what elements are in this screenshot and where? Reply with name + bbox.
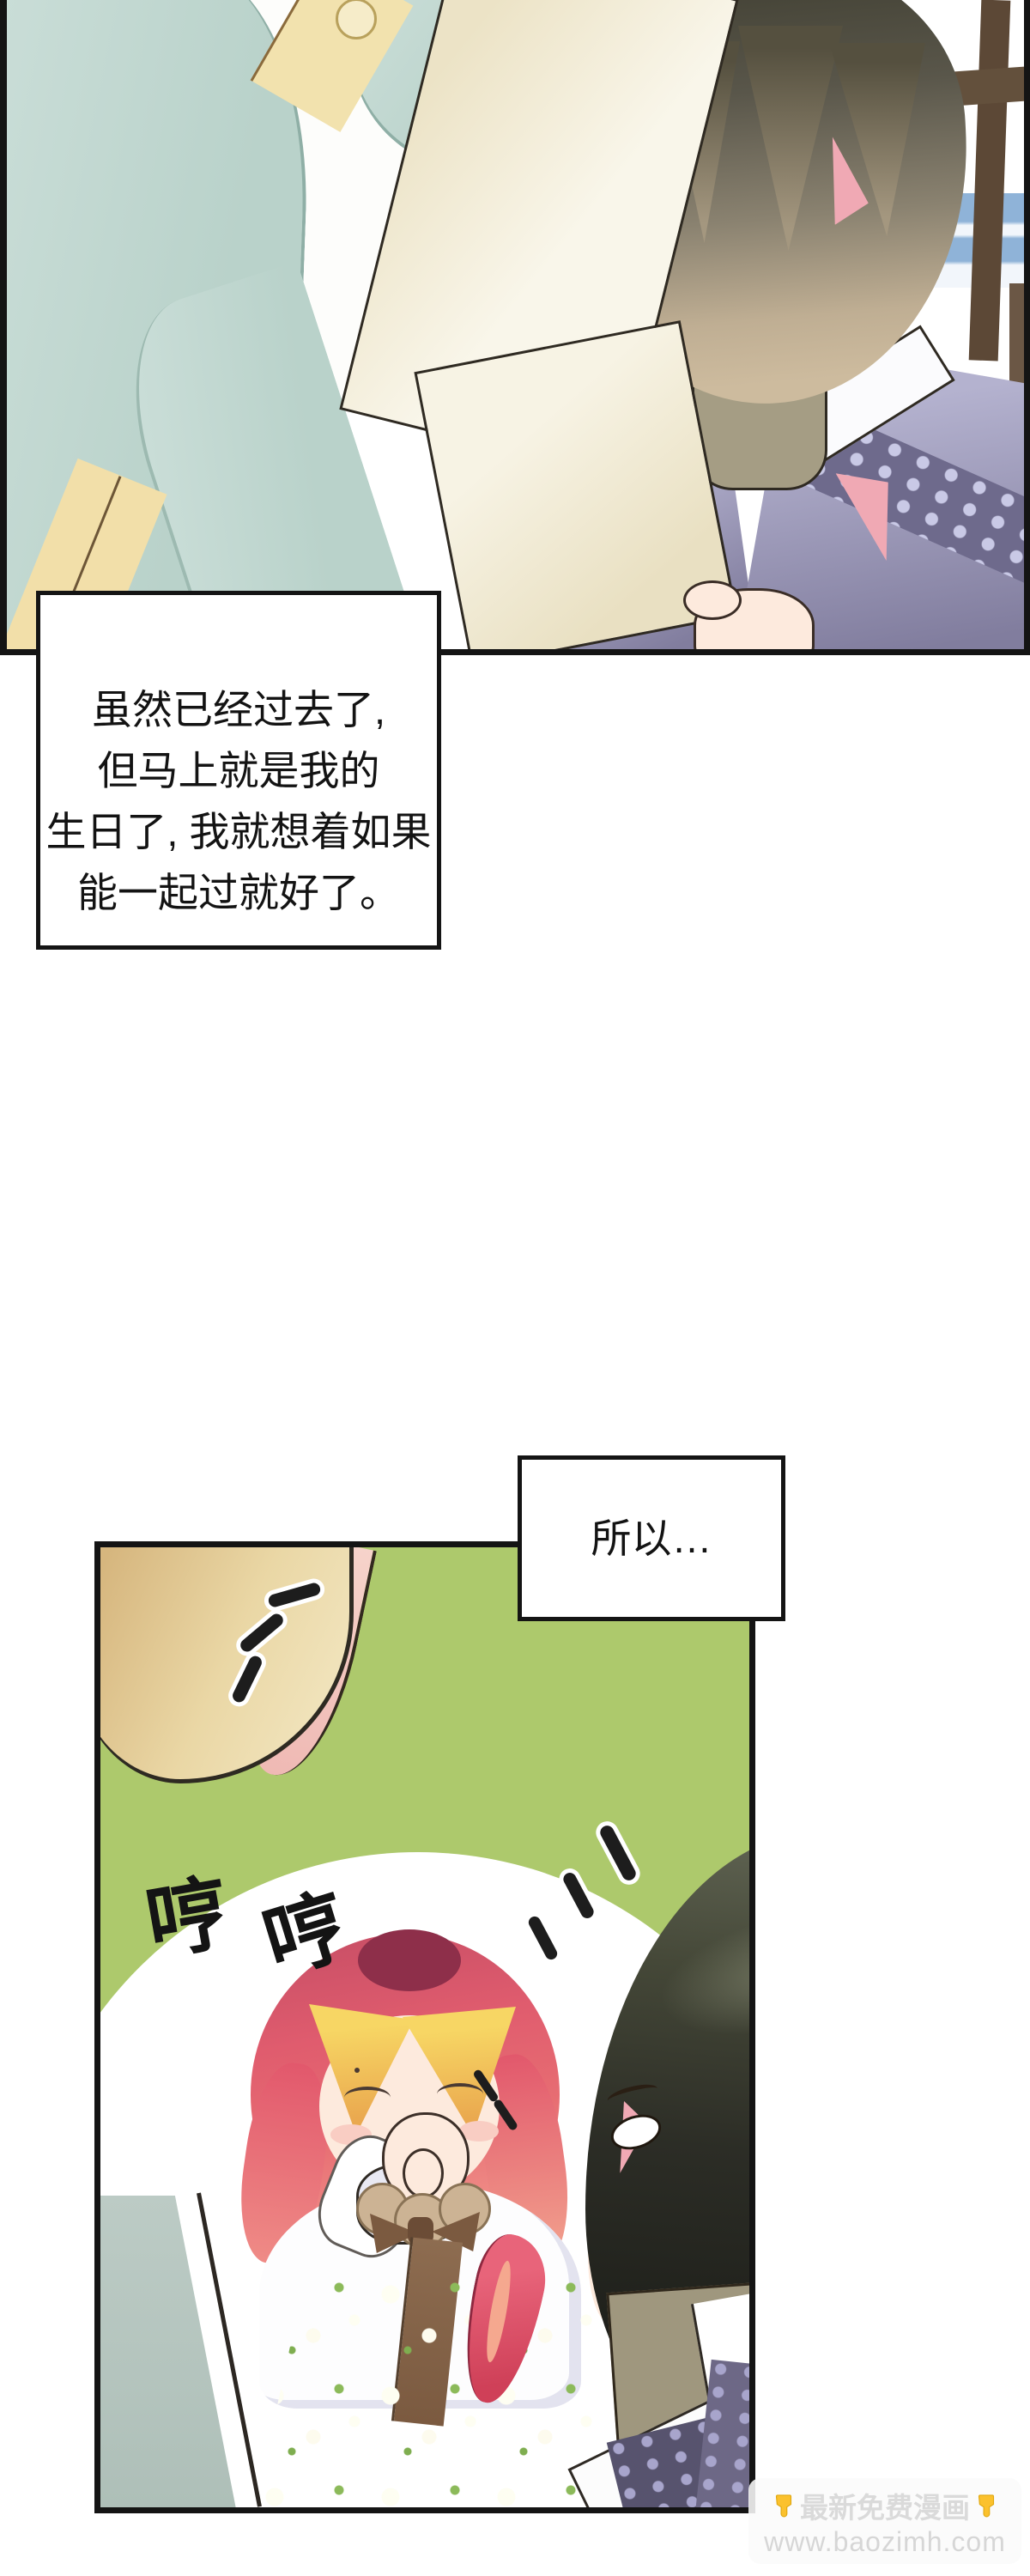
panel-top [0, 0, 1030, 655]
panel-bottom: 哼 哼 [94, 1541, 755, 2513]
sfx-giggle-char2: 哼 [248, 1861, 360, 1997]
site-watermark: 最新免费漫画 www.baozimh.com [748, 2478, 1021, 2564]
girl-thumb [403, 2148, 444, 2198]
girl-eye-left-closed [344, 2087, 391, 2109]
speech1-line3: 生日了, 我就想着如果 [40, 801, 437, 862]
speaker-thumb [683, 580, 742, 620]
girl-beauty-mark [354, 2068, 360, 2073]
watermark-text-line1: 最新免费漫画 [800, 2485, 970, 2526]
speech1-line1: 虽然已经过去了, [40, 679, 437, 740]
speech-bubble-1: 虽然已经过去了, 但马上就是我的 生日了, 我就想着如果 能一起过就好了。 [36, 591, 441, 950]
speech2-text: 所以… [522, 1513, 781, 1564]
window-frame-vertical [969, 0, 1011, 361]
pointing-down-hand-icon [769, 2491, 798, 2520]
speech-bubble-2: 所以… [518, 1455, 785, 1621]
mint-coat-button [336, 0, 377, 39]
speech1-line4: 能一起过就好了。 [40, 862, 437, 923]
pointing-down-hand-icon [972, 2491, 1001, 2520]
watermark-text-line2: www.baozimh.com [748, 2526, 1021, 2558]
emphasis-mark-4 [598, 1823, 639, 1882]
girl-eye-right-closed [437, 2083, 483, 2105]
speech1-line2: 但马上就是我的 [40, 740, 437, 801]
